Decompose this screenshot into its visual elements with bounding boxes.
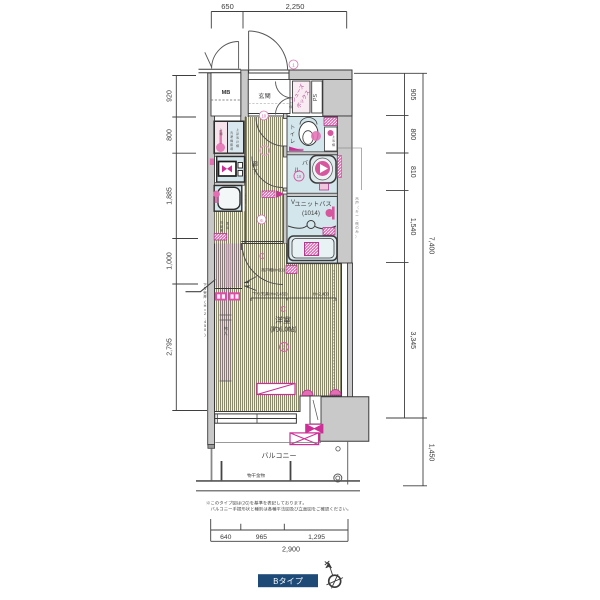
svg-text:0: 0 bbox=[204, 328, 206, 332]
svg-text:1,000: 1,000 bbox=[166, 252, 173, 270]
svg-text:3,345: 3,345 bbox=[409, 332, 416, 350]
svg-text:→: → bbox=[355, 218, 359, 222]
svg-text:(1014): (1014) bbox=[302, 210, 320, 217]
svg-text:0: 0 bbox=[245, 198, 247, 202]
svg-text:C: C bbox=[259, 252, 265, 261]
svg-text:2,900: 2,900 bbox=[282, 545, 300, 554]
svg-text:2,250: 2,250 bbox=[286, 2, 305, 11]
svg-text:MB: MB bbox=[222, 90, 231, 96]
svg-text:1,885: 1,885 bbox=[166, 187, 173, 205]
svg-text:2: 2 bbox=[283, 346, 286, 352]
svg-text:650: 650 bbox=[221, 2, 234, 11]
svg-text:10: 10 bbox=[261, 113, 266, 118]
svg-text:C: C bbox=[280, 305, 286, 314]
svg-text:640: 640 bbox=[220, 534, 232, 541]
svg-text:800: 800 bbox=[166, 129, 173, 141]
svg-text:1,295: 1,295 bbox=[308, 534, 325, 541]
svg-text:PS: PS bbox=[313, 94, 319, 101]
svg-text:920: 920 bbox=[166, 90, 173, 102]
svg-text:V: V bbox=[291, 200, 295, 206]
svg-text:810: 810 bbox=[409, 166, 416, 178]
svg-text:1,540: 1,540 bbox=[409, 218, 416, 236]
svg-text:): ) bbox=[245, 203, 246, 207]
svg-text:800: 800 bbox=[409, 128, 416, 140]
svg-text:1,450: 1,450 bbox=[427, 444, 434, 462]
svg-text:965: 965 bbox=[256, 534, 268, 541]
svg-text:7,400: 7,400 bbox=[427, 237, 434, 255]
svg-text:905: 905 bbox=[409, 89, 416, 101]
svg-text:2,795: 2,795 bbox=[166, 338, 173, 356]
svg-text:18: 18 bbox=[297, 174, 302, 179]
svg-text:H=2,400: H=2,400 bbox=[313, 292, 330, 297]
